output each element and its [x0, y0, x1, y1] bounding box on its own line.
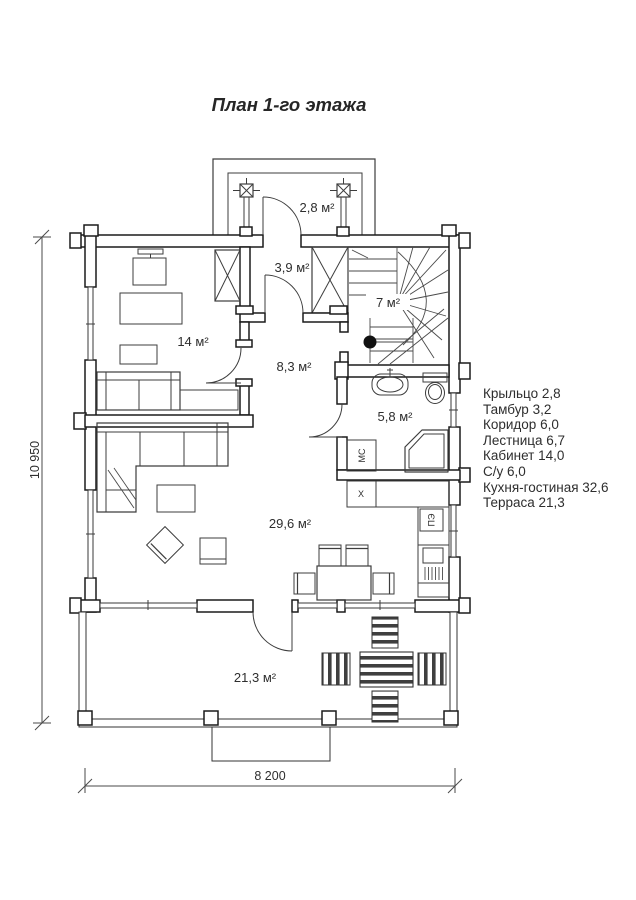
chimney-shaft — [215, 250, 240, 301]
armchair — [147, 527, 184, 564]
terrace-post — [204, 711, 218, 725]
terrace-post — [78, 711, 92, 725]
outdoor-chair — [372, 617, 398, 648]
dining-set — [294, 545, 394, 600]
legend-item: Крыльцо 2,8 — [483, 386, 609, 402]
legend-item: Кабинет 14,0 — [483, 448, 609, 464]
legend-item: Тамбур 3,2 — [483, 402, 609, 418]
floor-plan-page: План 1-го этажа — [0, 0, 636, 900]
tambour-area-label: 3,9 м² — [275, 260, 311, 275]
porch-door — [263, 197, 301, 235]
dining-chair — [319, 545, 341, 566]
stair-lower-flight — [370, 309, 448, 364]
stairs-area-label: 7 м² — [376, 295, 401, 310]
corridor-area-label: 8,3 м² — [277, 359, 313, 374]
kitchen-counter-top: Х — [347, 481, 449, 507]
terrace-railing-left — [79, 612, 86, 726]
desk-with-monitor — [133, 249, 166, 285]
study-furniture — [97, 249, 238, 410]
outdoor-chair — [418, 653, 446, 685]
legend-item: Терраса 21,3 — [483, 495, 609, 511]
study-table — [120, 293, 182, 324]
terrace-door — [253, 612, 292, 651]
kitchen-living-area-label: 29,6 м² — [269, 516, 312, 531]
terrace-railing-right — [450, 612, 457, 726]
terrace — [78, 612, 458, 761]
living-room-furniture — [97, 423, 228, 564]
dining-chair — [346, 545, 368, 566]
porch-post — [330, 178, 357, 197]
study-area-label: 14 м² — [177, 334, 209, 349]
washing-machine: МС — [347, 440, 376, 471]
dining-chair — [294, 573, 315, 594]
corner-shower — [405, 430, 448, 472]
pouf — [200, 538, 226, 564]
kitchen: Х ПЭ — [294, 481, 449, 600]
stove-label: ПЭ — [427, 513, 437, 526]
terrace-area-label: 21,3 м² — [234, 670, 277, 685]
legend-item: Кухня-гостиная 32,6 — [483, 480, 609, 496]
outdoor-furniture — [322, 617, 446, 722]
legend-item: С/у 6,0 — [483, 464, 609, 480]
corner-sofa — [97, 423, 228, 512]
terrace-steps — [212, 727, 330, 761]
terrace-post — [444, 711, 458, 725]
outdoor-chair — [372, 691, 398, 722]
room-legend: Крыльцо 2,8 Тамбур 3,2 Коридор 6,0 Лестн… — [483, 386, 609, 511]
fridge-label: Х — [358, 489, 364, 499]
porch-area-label: 2,8 м² — [300, 200, 336, 215]
terrace-post — [322, 711, 336, 725]
height-dimension-label: 10 950 — [28, 441, 42, 479]
horizontal-dimension: 8 200 — [78, 768, 462, 793]
dining-chair — [373, 573, 394, 594]
tambour-door — [265, 275, 303, 313]
width-dimension-label: 8 200 — [254, 769, 285, 783]
outdoor-table — [360, 652, 413, 687]
chimney-shaft — [312, 247, 348, 313]
study-door — [206, 348, 241, 383]
porch-canopy — [213, 159, 375, 235]
study-cabinet — [120, 345, 157, 364]
stair-treads — [349, 247, 397, 302]
porch-post — [233, 178, 260, 197]
stair-post — [364, 336, 377, 349]
kitchen-counter-right: ПЭ — [418, 507, 449, 597]
terrace-railing-bottom — [79, 719, 457, 727]
coffee-table — [157, 485, 195, 512]
bathroom-door — [309, 404, 342, 437]
kitchen-sink — [423, 548, 443, 580]
bathroom-area-label: 5,8 м² — [378, 409, 414, 424]
legend-item: Коридор 6,0 — [483, 417, 609, 433]
washing-machine-label: МС — [357, 448, 367, 462]
study-sofa — [97, 372, 238, 410]
legend-item: Лестница 6,7 — [483, 433, 609, 449]
windows — [86, 287, 458, 610]
dining-table — [317, 566, 371, 600]
outdoor-chair — [322, 653, 350, 685]
vertical-dimension: 10 950 — [28, 230, 51, 730]
